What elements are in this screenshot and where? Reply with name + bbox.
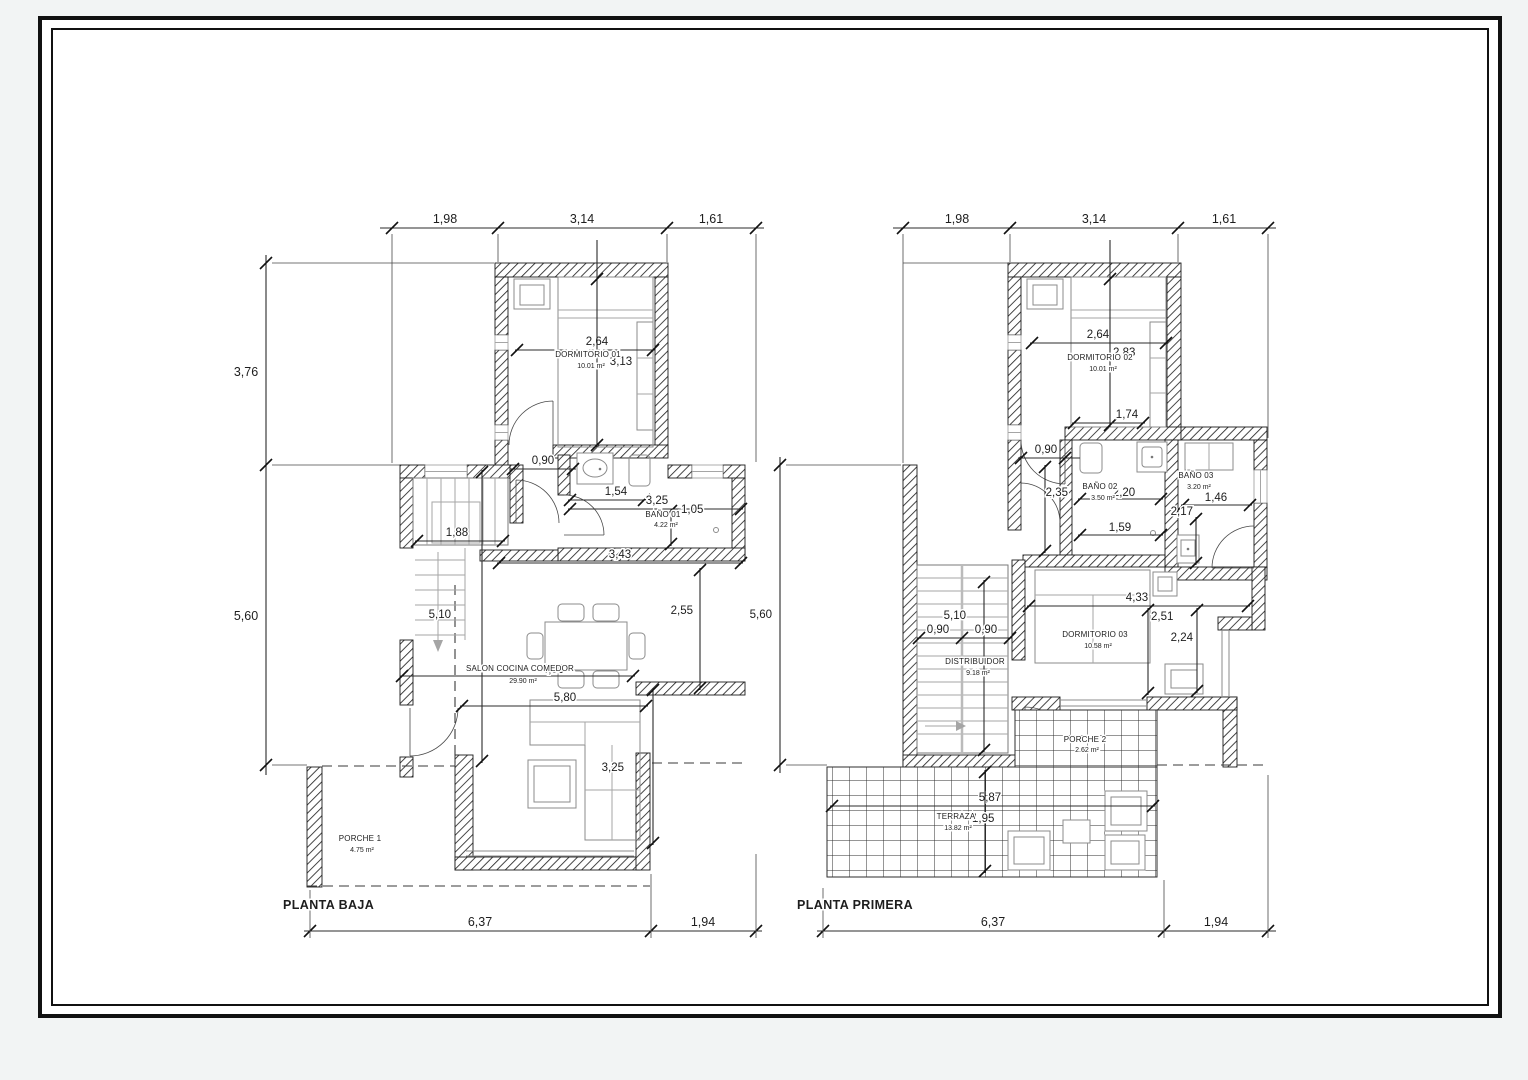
room-bano3: BAÑO 03	[1178, 471, 1214, 480]
stairs	[413, 478, 508, 652]
area-dormitorio1: 10.01 m²	[577, 363, 605, 370]
room-distribuidor: DISTRIBUIDOR	[945, 657, 1005, 666]
dim-salon-top: 3,43	[609, 549, 631, 561]
dim-bottom-1: 6,37	[981, 915, 1005, 929]
dim-bed-foot: 1,74	[1116, 409, 1139, 421]
area-dormitorio2: 10.01 m²	[1089, 366, 1117, 373]
plan-planta-baja: 1,98 3,14 1,61 3,76 5,60 6,37 1,94	[234, 212, 764, 938]
dim-top-1: 1,98	[433, 212, 457, 226]
windows	[1008, 335, 1267, 706]
dim-top-1: 1,98	[945, 212, 969, 226]
room-dormitorio2: DORMITORIO 02	[1067, 353, 1133, 362]
dim-bottom-1: 6,37	[468, 915, 492, 929]
dim-hall-h: 2,35	[1046, 487, 1068, 499]
dim-dorm3-e: 2,24	[1171, 632, 1194, 644]
area-bano3: 3.20 m²	[1187, 484, 1211, 491]
plan-title-planta-primera: PLANTA PRIMERA	[797, 898, 913, 912]
dim-stair-h: 5,10	[944, 610, 966, 622]
dim-dorm3-w: 4,33	[1126, 592, 1148, 604]
dim-flight2: 0,90	[975, 624, 997, 636]
dim-bath3-h: 2,17	[1171, 506, 1193, 518]
dim-salon-right: 2,55	[671, 605, 693, 617]
dim-left-1: 3,76	[234, 365, 258, 379]
dim-top-3: 1,61	[1212, 212, 1236, 226]
area-porche2: 2.62 m²	[1075, 747, 1099, 754]
area-terraza: 13.82 m²	[944, 825, 972, 832]
room-terraza: TERRAZA	[937, 812, 976, 821]
room-dormitorio1: DORMITORIO 01	[555, 350, 621, 359]
dim-top-2: 3,14	[570, 212, 594, 226]
room-porche2: PORCHE 2	[1064, 735, 1107, 744]
area-bano2: 3.50 m²	[1091, 495, 1115, 502]
walls	[307, 263, 745, 887]
floor-plan-canvas: 1,98 3,14 1,61 3,76 5,60 6,37 1,94	[0, 0, 1528, 1080]
dim-terraza-w: 5,87	[979, 792, 1001, 804]
dim-bed-w: 2,64	[1087, 329, 1110, 341]
dim-left-1: 5,60	[750, 609, 772, 621]
dim-dorm3-h: 2,51	[1151, 611, 1173, 623]
plan-planta-primera: 1,98 3,14 1,61 5,60 6,37 1,94	[750, 212, 1276, 938]
dim-top-2: 3,14	[1082, 212, 1106, 226]
area-distribuidor: 9.18 m²	[966, 670, 990, 677]
plan-title-planta-baja: PLANTA BAJA	[283, 898, 374, 912]
dim-bath2-low: 1,59	[1109, 522, 1131, 534]
dim-flight1: 0,90	[927, 624, 949, 636]
dim-stair-h: 5,10	[429, 609, 451, 621]
room-dormitorio3: DORMITORIO 03	[1062, 630, 1128, 639]
room-labels: DORMITORIO 01 10.01 m² BAÑO 01 4.22 m² S…	[339, 350, 681, 854]
area-bano1: 4.22 m²	[654, 522, 678, 529]
area-dormitorio3: 10.58 m²	[1084, 643, 1112, 650]
dim-bath3-w: 1,46	[1205, 492, 1227, 504]
room-salon: SALON COCINA COMEDOR	[466, 664, 574, 673]
dim-salon-h: 3,25	[602, 762, 624, 774]
dim-salon-w: 5,80	[554, 692, 576, 704]
dim-door: 0,90	[1035, 444, 1057, 456]
area-salon: 29.90 m²	[509, 678, 537, 685]
dim-bottom-2: 1,94	[1204, 915, 1228, 929]
dim-top-3: 1,61	[699, 212, 723, 226]
room-bano2: BAÑO 02	[1082, 482, 1118, 491]
room-porche1: PORCHE 1	[339, 834, 382, 843]
dim-bath-h: 1,05	[681, 504, 703, 516]
room-bano1: BAÑO 01	[645, 510, 681, 519]
dim-sink: 1,54	[605, 486, 628, 498]
dim-door: 0,90	[532, 455, 554, 467]
bedroom2-furniture	[1027, 277, 1166, 427]
area-porche1: 4.75 m²	[350, 847, 374, 854]
dim-stair-w: 1,88	[446, 527, 468, 539]
dim-bottom-2: 1,94	[691, 915, 715, 929]
dim-bath-w: 3,25	[646, 495, 668, 507]
dim-left-2: 5,60	[234, 609, 258, 623]
